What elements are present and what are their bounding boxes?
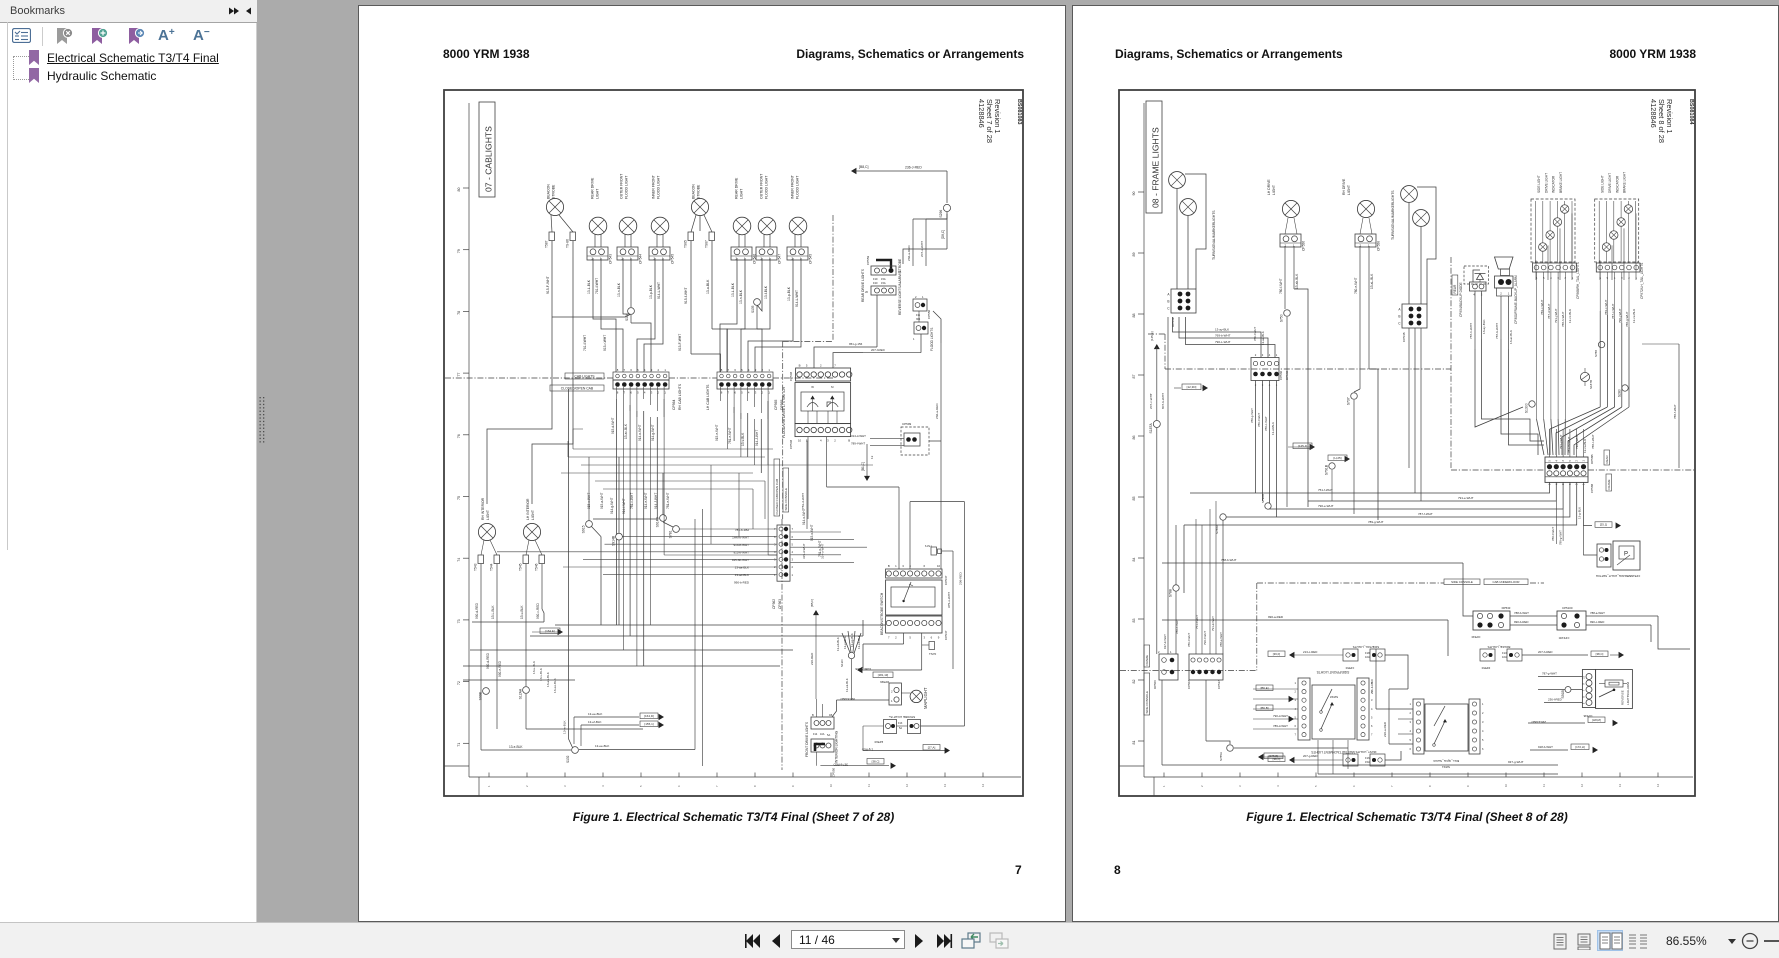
svg-text:LH DRIVE: LH DRIVE <box>1267 179 1271 195</box>
svg-text:[38,C]: [38,C] <box>1273 757 1281 761</box>
svg-text:788-f-WHT: 788-f-WHT <box>1673 404 1677 419</box>
svg-text:[164,E]: [164,E] <box>545 629 555 633</box>
svg-text:1-g-RED: 1-g-RED <box>862 748 873 752</box>
svg-text:13-p-BLK: 13-p-BLK <box>787 286 791 301</box>
svg-text:08 - FRAME LIGHTS: 08 - FRAME LIGHTS <box>1151 127 1161 208</box>
svg-text:207-e-WHT: 207-e-WHT <box>920 241 924 257</box>
svg-text:915-f-WHT: 915-f-WHT <box>684 287 688 304</box>
svg-text:12: 12 <box>905 783 909 787</box>
svg-text:T544: T544 <box>490 563 494 571</box>
svg-text:780-e-WHT: 780-e-WHT <box>1354 277 1358 294</box>
svg-text:5: 5 <box>1482 738 1484 742</box>
svg-text:78: 78 <box>457 311 461 315</box>
svg-text:990-b-RED: 990-b-RED <box>734 581 750 585</box>
svg-text:REVERSE LIGHTS/ALARM/ STROBE: REVERSE LIGHTS/ALARM/ STROBE <box>898 258 902 315</box>
svg-text:780-g-WHT: 780-g-WHT <box>1250 408 1254 423</box>
svg-text:S788A: S788A <box>1215 525 1219 534</box>
svg-text:TS87: TS87 <box>705 240 709 248</box>
svg-text:914-n-WHT: 914-n-WHT <box>638 424 642 441</box>
svg-text:397-b-RED: 397-b-RED <box>834 763 848 767</box>
svg-text:FLOOD LIGHT: FLOOD LIGHT <box>765 175 769 199</box>
svg-text:LIGHT: LIGHT <box>486 510 490 520</box>
svg-text:DP549: DP549 <box>1171 317 1175 327</box>
svg-text:SIDE CONSOLE: SIDE CONSOLE <box>1145 691 1149 714</box>
svg-text:S99B: S99B <box>478 691 482 700</box>
svg-text:3: 3 <box>563 785 567 787</box>
svg-text:7: 7 <box>834 364 836 368</box>
svg-text:791-d-WHT: 791-d-WHT <box>1211 616 1215 631</box>
svg-text:CP545: CP545 <box>671 254 675 264</box>
svg-text:7: 7 <box>888 636 890 640</box>
svg-text:BRAKE LIGHT: BRAKE LIGHT <box>1559 172 1563 193</box>
svg-text:1HM-A-91B: 1HM-A-91B <box>855 667 871 671</box>
svg-text:789-f-WHT: 789-f-WHT <box>1257 413 1261 427</box>
svg-text:DRIVE LIGHT: DRIVE LIGHT <box>1544 173 1548 193</box>
svg-text:Sheet 7 of 28: Sheet 7 of 28 <box>985 99 994 143</box>
svg-text:7: 7 <box>624 391 626 395</box>
svg-text:3: 3 <box>1238 785 1242 787</box>
svg-text:CP544: CP544 <box>639 254 643 264</box>
svg-text:73: 73 <box>457 619 461 623</box>
svg-text:9: 9 <box>1466 785 1470 787</box>
svg-text:1B: 1B <box>829 713 832 717</box>
svg-text:7: 7 <box>1583 689 1586 691</box>
svg-text:CP550: CP550 <box>927 309 931 319</box>
svg-text:13-cc-BLK: 13-cc-BLK <box>1568 309 1572 323</box>
svg-text:REVERSE: REVERSE <box>1621 690 1625 705</box>
svg-text:13-ce-BLK: 13-ce-BLK <box>1632 309 1636 323</box>
svg-text:1: 1 <box>891 699 893 703</box>
svg-text:DP596: DP596 <box>880 680 889 684</box>
svg-text:781-f-WHT: 781-f-WHT <box>595 278 599 294</box>
svg-text:[B5,F]: [B5,F] <box>810 599 814 607</box>
svg-text:7: 7 <box>1295 733 1297 737</box>
svg-text:13-ek-BLK: 13-ek-BLK <box>845 678 849 692</box>
svg-text:990-c-RED: 990-c-RED <box>536 603 540 619</box>
svg-text:13-ar-BLK: 13-ar-BLK <box>1509 329 1513 344</box>
svg-text:INNER FRONT: INNER FRONT <box>791 174 795 199</box>
svg-text:1: 1 <box>913 337 915 341</box>
svg-text:789-c-WHT: 789-c-WHT <box>1604 299 1608 315</box>
svg-text:CP556: CP556 <box>1302 241 1306 251</box>
svg-text:783-m-WHT: 783-m-WHT <box>1567 436 1571 453</box>
svg-text:81: 81 <box>1132 741 1136 745</box>
svg-text:789-f-WHT: 789-f-WHT <box>1187 633 1191 647</box>
svg-text:5: 5 <box>1549 483 1552 485</box>
svg-text:BS081084: BS081084 <box>1688 99 1694 124</box>
svg-text:CP558: CP558 <box>1377 241 1381 251</box>
svg-text:TS-86: TS-86 <box>566 239 570 248</box>
svg-text:2: 2 <box>762 368 764 372</box>
svg-text:2: 2 <box>525 785 529 787</box>
svg-text:CP530: CP530 <box>1471 635 1480 639</box>
svg-text:790-f-WHT: 790-f-WHT <box>1203 631 1207 645</box>
svg-text:3: 3 <box>1410 720 1412 724</box>
svg-text:780-c-WHT: 780-c-WHT <box>1175 619 1179 634</box>
svg-text:OUTER FRONT: OUTER FRONT <box>760 173 764 199</box>
svg-text:13-ah-BLK: 13-ah-BLK <box>1295 273 1299 289</box>
svg-text:TS70: TS70 <box>929 652 937 656</box>
svg-text:1: 1 <box>1162 785 1166 787</box>
svg-text:CP588: CP588 <box>1590 483 1594 493</box>
svg-text:[38,C]: [38,C] <box>872 759 880 763</box>
svg-text:[B1,C]: [B1,C] <box>861 462 865 471</box>
svg-text:S187A: S187A <box>1149 423 1153 434</box>
svg-text:8: 8 <box>721 391 723 395</box>
svg-text:15A: 15A <box>881 281 886 285</box>
svg-text:6: 6 <box>1410 747 1412 751</box>
svg-text:13-ej-BLK: 13-ej-BLK <box>843 636 847 649</box>
svg-text:990-d-RED: 990-d-RED <box>486 652 490 669</box>
svg-text:SW11: SW11 <box>1442 765 1450 769</box>
svg-text:769-b-WHT: 769-b-WHT <box>1215 334 1231 338</box>
svg-text:89: 89 <box>1132 253 1136 257</box>
svg-text:230-RED: 230-RED <box>810 652 814 665</box>
svg-text:LIGHT: LIGHT <box>1347 185 1351 195</box>
svg-text:1: 1 <box>1295 681 1297 685</box>
svg-text:10: 10 <box>829 783 833 787</box>
svg-text:2: 2 <box>834 439 836 443</box>
svg-text:84: 84 <box>1132 558 1136 562</box>
svg-text:13-ay-BLK: 13-ay-BLK <box>1482 318 1486 334</box>
svg-text:3: 3 <box>924 636 926 640</box>
svg-text:STROBE: STROBE <box>697 184 701 199</box>
svg-text:SIDE LIGHT: SIDE LIGHT <box>1537 175 1541 193</box>
svg-text:791-j-WHT: 791-j-WHT <box>1554 308 1558 323</box>
svg-text:10: 10 <box>937 564 941 568</box>
svg-text:5: 5 <box>637 368 639 372</box>
svg-text:1: 1 <box>1583 483 1586 485</box>
svg-text:5: 5 <box>639 785 643 787</box>
svg-text:[H,25]: [H,25] <box>1333 456 1341 460</box>
svg-text:13-ee-BLK: 13-ee-BLK <box>588 712 602 716</box>
svg-text:236-J-RED: 236-J-RED <box>905 166 922 170</box>
svg-text:13-L-BLK: 13-L-BLK <box>731 282 735 297</box>
svg-text:CP972/LH_TAIL_LIGHTS: CP972/LH_TAIL_LIGHTS <box>1640 263 1644 299</box>
svg-text:RH DRIVE: RH DRIVE <box>1342 178 1346 195</box>
svg-text:10A: 10A <box>1502 655 1507 659</box>
svg-text:914-o-WHT: 914-o-WHT <box>802 508 806 525</box>
svg-text:781-f-WHT: 781-f-WHT <box>583 335 587 351</box>
svg-text:CP548: CP548 <box>789 371 793 381</box>
svg-text:[27,A]: [27,A] <box>928 745 936 749</box>
svg-text:STROBE: STROBE <box>552 184 556 199</box>
svg-text:[H8,M]: [H8,M] <box>1592 718 1601 722</box>
svg-text:B: B <box>1167 300 1169 304</box>
svg-text:13-n-BLK: 13-n-BLK <box>617 282 621 297</box>
svg-text:781-c-WHT: 781-c-WHT <box>630 493 634 509</box>
svg-text:2: 2 <box>1158 650 1160 654</box>
svg-text:S781: S781 <box>668 530 672 538</box>
svg-text:LH CAB LIGHTS: LH CAB LIGHTS <box>706 384 710 410</box>
svg-text:CP550: CP550 <box>832 767 836 777</box>
svg-text:79: 79 <box>457 249 461 253</box>
svg-text:787-c-WHT: 787-c-WHT <box>1611 303 1615 319</box>
svg-text:15A: 15A <box>881 277 886 281</box>
svg-text:S750: S750 <box>1280 314 1284 322</box>
svg-text:5: 5 <box>1410 738 1412 742</box>
svg-text:CP548: CP548 <box>1402 332 1406 342</box>
svg-text:914-J-WHT: 914-J-WHT <box>654 493 658 509</box>
svg-text:2: 2 <box>1410 711 1412 715</box>
svg-text:[B8,C]: [B8,C] <box>859 165 868 169</box>
svg-text:F11: F11 <box>916 314 921 317</box>
svg-text:6: 6 <box>1352 785 1356 787</box>
svg-text:BEACON/STROBE SWITCH: BEACON/STROBE SWITCH <box>880 592 884 635</box>
svg-text:T587: T587 <box>545 240 549 248</box>
svg-text:DP58B: DP58B <box>1590 454 1594 464</box>
svg-text:3: 3 <box>1562 460 1565 462</box>
svg-text:9: 9 <box>791 785 795 787</box>
svg-text:7: 7 <box>715 785 719 787</box>
svg-text:207-h-RED: 207-h-RED <box>1538 650 1552 654</box>
svg-text:FRAME: FRAME <box>1607 479 1611 489</box>
svg-text:7: 7 <box>792 527 794 531</box>
svg-text:[B6,E]: [B6,E] <box>1261 686 1269 690</box>
svg-text:3: 3 <box>755 368 757 372</box>
svg-text:1: 1 <box>768 368 770 372</box>
svg-text:2: 2 <box>762 391 764 395</box>
svg-text:5: 5 <box>1569 483 1572 485</box>
svg-text:4: 4 <box>644 391 646 395</box>
svg-text:FRONT DRIVE LIGHTS: FRONT DRIVE LIGHTS <box>805 721 809 757</box>
svg-text:13-af-BLK: 13-af-BLK <box>1271 422 1275 435</box>
svg-text:[172,H]: [172,H] <box>1575 745 1585 749</box>
svg-text:13-v-BLK: 13-v-BLK <box>539 667 543 681</box>
svg-text:780-f-WHT: 780-f-WHT <box>1279 278 1283 294</box>
svg-text:918-b-WHT: 918-b-WHT <box>1538 745 1553 749</box>
svg-text:SW18: SW18 <box>1330 695 1339 699</box>
svg-text:780-f-WHT: 780-f-WHT <box>1551 527 1555 541</box>
svg-text:6: 6 <box>734 391 736 395</box>
svg-text:790-j-WHT: 790-j-WHT <box>1618 308 1622 323</box>
svg-text:S1300: S1300 <box>1525 403 1529 413</box>
svg-text:TURNSIGNAL/MARKERLIGHTS: TURNSIGNAL/MARKERLIGHTS <box>1212 210 1216 260</box>
svg-text:7: 7 <box>1371 733 1373 737</box>
svg-text:13-a-BLK: 13-a-BLK <box>706 279 710 294</box>
svg-text:CP548: CP548 <box>789 439 793 449</box>
svg-text:4: 4 <box>601 785 605 787</box>
svg-text:STROBE LIGHT B+: STROBE LIGHT B+ <box>888 715 915 719</box>
svg-text:13-aL-BLK: 13-aL-BLK <box>1370 273 1374 289</box>
svg-text:990-d-RED: 990-d-RED <box>475 602 479 619</box>
svg-text:REAR DRIVE: REAR DRIVE <box>735 177 739 199</box>
svg-text:F20: F20 <box>873 281 878 285</box>
svg-text:F19: F19 <box>873 277 878 281</box>
svg-text:8: 8 <box>617 368 619 372</box>
svg-text:8: 8 <box>1583 696 1586 698</box>
svg-text:788-b-WHT: 788-b-WHT <box>1221 558 1237 562</box>
svg-text:1: 1 <box>922 295 924 299</box>
svg-text:W: W <box>811 385 814 389</box>
svg-text:790-e-WHT: 790-e-WHT <box>1318 504 1334 508</box>
svg-text:T545: T545 <box>519 563 523 571</box>
svg-text:3: 3 <box>1371 698 1373 702</box>
svg-text:[181,13]: [181,13] <box>878 673 889 677</box>
svg-text:5: 5 <box>806 364 808 368</box>
svg-text:CAB UNDERFLOOR: CAB UNDERFLOOR <box>1493 580 1520 584</box>
svg-text:915-F-WHT: 915-F-WHT <box>546 276 550 294</box>
svg-text:CP599: CP599 <box>902 422 912 426</box>
svg-text:314-o-WHT: 314-o-WHT <box>821 543 825 559</box>
svg-text:13-u-BLK: 13-u-BLK <box>532 660 536 674</box>
svg-text:3: 3 <box>902 564 904 568</box>
svg-text:1: 1 <box>664 391 666 395</box>
svg-text:1: 1 <box>1508 292 1510 296</box>
svg-text:5: 5 <box>741 368 743 372</box>
svg-text:CP564: CP564 <box>672 400 676 410</box>
svg-text:Revision 1: Revision 1 <box>1665 99 1674 134</box>
svg-text:914-g-WHT: 914-g-WHT <box>610 497 614 514</box>
svg-text:5: 5 <box>1371 715 1373 719</box>
svg-text:2: 2 <box>1295 690 1297 694</box>
svg-text:751-f-WHT: 751-f-WHT <box>1195 615 1199 629</box>
svg-text:787-f-WHT: 787-f-WHT <box>1418 512 1433 516</box>
svg-text:CP545: CP545 <box>809 254 813 264</box>
svg-text:BEACON: BEACON <box>692 184 696 199</box>
svg-text:3: 3 <box>1482 720 1484 724</box>
svg-text:5: 5 <box>909 636 911 640</box>
svg-text:5: 5 <box>1549 460 1552 462</box>
svg-text:CP516B/BRAKE_LIGHT_SWITCH: CP516B/BRAKE_LIGHT_SWITCH <box>1596 574 1641 578</box>
svg-text:13-p-BLK: 13-p-BLK <box>649 284 653 299</box>
svg-text:90: 90 <box>1132 192 1136 196</box>
svg-text:2: 2 <box>891 690 893 694</box>
svg-text:13-ae-BLK: 13-ae-BLK <box>1261 331 1265 345</box>
svg-text:[38,C]: [38,C] <box>1596 652 1604 656</box>
svg-text:MAST_LIGHTS: MAST_LIGHTS <box>1356 750 1377 754</box>
svg-text:CP550: CP550 <box>1345 666 1354 670</box>
svg-text:789-f-WHT: 789-f-WHT <box>851 442 865 446</box>
svg-text:13-f-BLK: 13-f-BLK <box>764 285 768 299</box>
svg-text:A: A <box>1398 308 1401 312</box>
svg-text:7: 7 <box>624 368 626 372</box>
svg-text:S12AA: S12AA <box>518 688 522 699</box>
svg-text:787-d-WHT: 787-d-WHT <box>1547 303 1551 319</box>
svg-text:4: 4 <box>1276 785 1280 787</box>
svg-text:1: 1 <box>1482 702 1484 706</box>
svg-text:S785A: S785A <box>1219 752 1223 761</box>
svg-text:80: 80 <box>457 188 461 192</box>
svg-text:S788: S788 <box>1169 589 1173 597</box>
svg-text:788-g-WHT: 788-g-WHT <box>1625 311 1629 327</box>
svg-text:975-e-WHT: 975-e-WHT <box>947 592 951 608</box>
svg-text:CP562: CP562 <box>772 599 776 609</box>
svg-text:7: 7 <box>728 391 730 395</box>
svg-text:INNER FRONT: INNER FRONT <box>652 174 656 199</box>
svg-text:FLOOD LIGHT: FLOOD LIGHT <box>625 175 629 199</box>
svg-text:FLOOD LIGHTS: FLOOD LIGHTS <box>930 328 934 351</box>
svg-text:[155,1]: [155,1] <box>644 722 653 726</box>
svg-text:6: 6 <box>1295 724 1297 728</box>
svg-text:2: 2 <box>895 636 897 640</box>
svg-text:990-e-RED: 990-e-RED <box>498 660 502 677</box>
svg-text:990-b-RED: 990-b-RED <box>1514 620 1528 624</box>
svg-text:915-c-WHT: 915-c-WHT <box>587 493 591 509</box>
svg-text:2: 2 <box>658 368 660 372</box>
svg-text:990-c-RED: 990-c-RED <box>1590 620 1604 624</box>
svg-text:236-a-RED: 236-a-RED <box>935 403 939 419</box>
svg-text:8: 8 <box>1428 785 1432 787</box>
svg-text:990-a-RED: 990-a-RED <box>1268 615 1284 619</box>
svg-text:72: 72 <box>457 681 461 685</box>
svg-text:915-d-WHT: 915-d-WHT <box>611 417 615 434</box>
svg-text:915-F-WHT: 915-F-WHT <box>678 334 682 351</box>
svg-text:780-c-WHT: 780-c-WHT <box>1264 416 1268 431</box>
svg-text:RH CAB LIGHTS: RH CAB LIGHTS <box>678 383 682 410</box>
svg-text:F13: F13 <box>1502 651 1507 655</box>
svg-text:S791B: S791B <box>1325 464 1329 475</box>
svg-text:6: 6 <box>734 368 736 372</box>
svg-text:781-b-1B2: 781-b-1B2 <box>735 528 749 532</box>
svg-text:211-b-RED: 211-b-RED <box>1370 678 1374 694</box>
svg-text:F18: F18 <box>1365 651 1370 655</box>
svg-text:4: 4 <box>1410 729 1412 733</box>
svg-text:13-L-BLK: 13-L-BLK <box>587 279 591 294</box>
svg-text:6: 6 <box>792 535 794 539</box>
svg-text:2: 2 <box>1576 460 1579 462</box>
svg-text:13-u-BLK: 13-u-BLK <box>520 605 524 619</box>
svg-text:1: 1 <box>895 564 897 568</box>
svg-text:77: 77 <box>457 373 461 377</box>
svg-text:FLOOD LIGHT: FLOOD LIGHT <box>796 175 800 199</box>
svg-text:5: 5 <box>1569 460 1572 462</box>
svg-text:2: 2 <box>1576 483 1579 485</box>
svg-text:DP506: DP506 <box>1153 680 1157 689</box>
svg-text:8: 8 <box>617 391 619 395</box>
svg-text:2: 2 <box>915 295 917 299</box>
svg-text:Sheet 8 of 28: Sheet 8 of 28 <box>1657 99 1666 143</box>
svg-text:83: 83 <box>1132 619 1136 623</box>
svg-text:13-L-BLK: 13-L-BLK <box>491 605 495 619</box>
svg-text:13-ee-BLK: 13-ee-BLK <box>553 677 557 693</box>
svg-text:5A: 5A <box>827 733 830 737</box>
svg-text:F16: F16 <box>1365 756 1370 760</box>
svg-text:6: 6 <box>1371 724 1373 728</box>
svg-text:4: 4 <box>748 368 750 372</box>
svg-text:937-g-WHT: 937-g-WHT <box>1508 760 1524 764</box>
svg-text:4: 4 <box>1555 460 1558 462</box>
svg-text:76: 76 <box>457 434 461 438</box>
svg-text:3: 3 <box>651 391 653 395</box>
svg-text:2: 2 <box>820 364 822 368</box>
svg-text:82: 82 <box>1132 680 1136 684</box>
svg-text:M: M <box>831 385 834 389</box>
svg-text:5: 5 <box>637 391 639 395</box>
svg-text:4: 4 <box>644 368 646 372</box>
svg-text:CP507: CP507 <box>1187 680 1191 689</box>
svg-text:789-g-WHT: 789-g-WHT <box>1559 530 1563 545</box>
svg-text:B: B <box>848 439 850 443</box>
svg-text:11: 11 <box>1542 784 1546 787</box>
svg-text:13: 13 <box>1618 783 1622 787</box>
svg-text:314-d-WHT: 314-d-WHT <box>851 434 866 438</box>
svg-text:6: 6 <box>1482 747 1484 751</box>
svg-text:236-RED: 236-RED <box>959 572 963 585</box>
svg-text:88: 88 <box>1132 314 1136 318</box>
svg-text:207-c-WHT: 207-c-WHT <box>1149 393 1153 409</box>
svg-text:CP568/RH_TAIL_LIGHTS: CP568/RH_TAIL_LIGHTS <box>1576 262 1580 299</box>
svg-text:INTERIOR LIGHTING: INTERIOR LIGHTING <box>835 730 839 763</box>
svg-text:13: 13 <box>943 783 947 787</box>
svg-text:213-c-RED: 213-c-RED <box>1303 650 1317 654</box>
svg-text:13-eb-BLK: 13-eb-BLK <box>836 637 840 651</box>
svg-text:TS85: TS85 <box>684 240 688 248</box>
svg-text:INDICATOR: INDICATOR <box>1615 175 1619 193</box>
svg-text:REAR: REAR <box>1453 284 1457 294</box>
svg-text:LH INTERIOR: LH INTERIOR <box>526 498 530 520</box>
svg-text:FRAME: FRAME <box>1145 655 1149 666</box>
